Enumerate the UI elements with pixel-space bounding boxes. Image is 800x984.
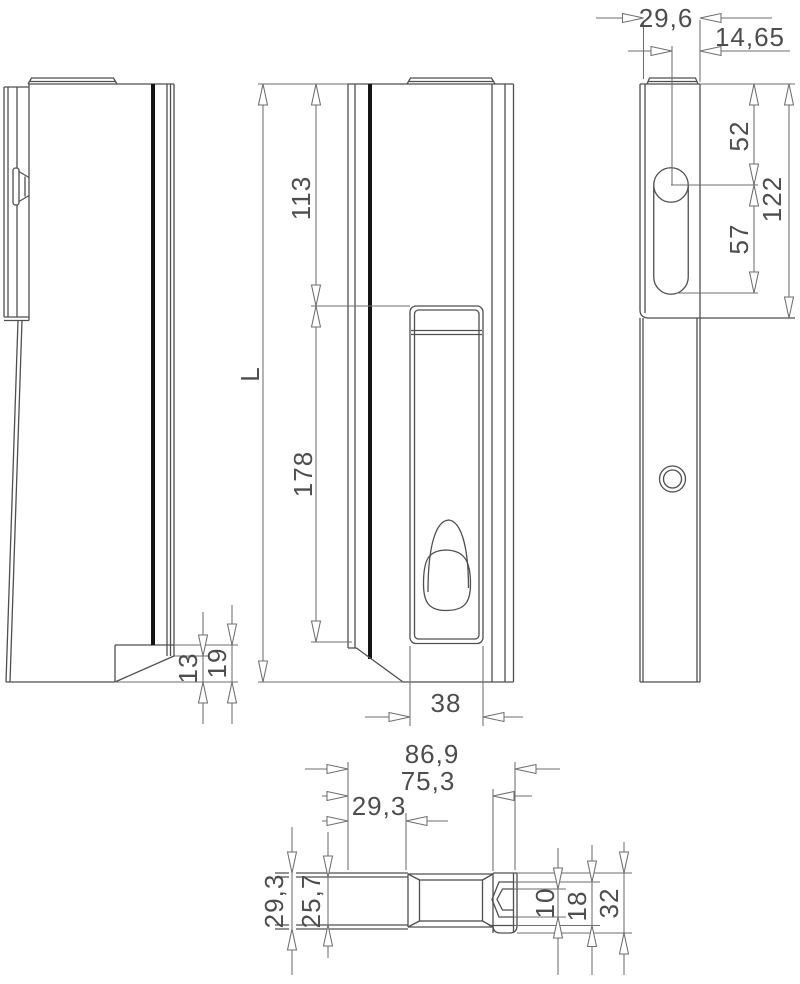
front-view: L 113 178 38 bbox=[235, 78, 523, 726]
dim-arrow bbox=[288, 852, 297, 873]
dim-arrow bbox=[327, 792, 348, 801]
drawing-canvas: 13 19 bbox=[0, 0, 800, 984]
plan-view: 86,9 75,3 29,3 29,3 25,7 bbox=[259, 739, 632, 975]
dim-arrow bbox=[785, 297, 794, 318]
dim-label-52: 52 bbox=[724, 121, 754, 152]
dim-arrow bbox=[199, 682, 208, 703]
part-outline bbox=[348, 78, 514, 682]
part-outline bbox=[4, 78, 174, 682]
dim-arrow bbox=[228, 682, 237, 703]
dim-label-122: 122 bbox=[757, 176, 787, 222]
knob bbox=[13, 168, 19, 205]
dim-label-86-9: 86,9 bbox=[405, 739, 460, 769]
dim-label-29-6: 29,6 bbox=[639, 3, 694, 33]
dim-label-13: 13 bbox=[173, 653, 203, 684]
dim-arrow bbox=[312, 306, 321, 327]
left-side-view: 13 19 bbox=[4, 78, 238, 724]
dim-arrow bbox=[259, 84, 268, 105]
technical-drawing: 13 19 bbox=[0, 0, 800, 984]
dim-arrow bbox=[515, 765, 536, 774]
dim-arrow bbox=[406, 817, 427, 826]
dim-arrow bbox=[588, 861, 597, 882]
dim-label-57: 57 bbox=[724, 224, 754, 255]
dimensions: 29,6 14,65 52 57 122 bbox=[596, 3, 795, 318]
part-outline bbox=[640, 78, 795, 682]
dim-arrow bbox=[288, 929, 297, 950]
right-side-view: 29,6 14,65 52 57 122 bbox=[596, 3, 795, 682]
dimensions: 86,9 75,3 29,3 29,3 25,7 bbox=[259, 739, 632, 975]
dim-arrow bbox=[785, 84, 794, 105]
dim-arrow bbox=[493, 792, 514, 801]
dim-label-10: 10 bbox=[530, 888, 560, 919]
dim-label-113: 113 bbox=[286, 176, 316, 220]
dim-label-32: 32 bbox=[594, 888, 624, 919]
dim-arrow bbox=[228, 624, 237, 645]
dim-arrow bbox=[312, 621, 321, 642]
dim-arrow bbox=[327, 765, 348, 774]
dim-arrow bbox=[483, 713, 504, 722]
dim-arrow bbox=[651, 47, 672, 56]
dim-label-38: 38 bbox=[431, 688, 462, 718]
dim-arrow bbox=[750, 272, 759, 293]
dim-label-14-65: 14,65 bbox=[715, 22, 785, 52]
hook bbox=[492, 882, 514, 917]
dim-arrow bbox=[620, 933, 629, 954]
dim-label-75-3: 75,3 bbox=[401, 766, 456, 796]
dim-label-L: L bbox=[235, 366, 265, 381]
dim-arrow bbox=[312, 285, 321, 306]
dim-label-178: 178 bbox=[288, 451, 318, 497]
dim-arrow bbox=[259, 661, 268, 682]
dim-arrow bbox=[312, 84, 321, 105]
dim-arrow bbox=[554, 868, 563, 889]
dimensions: 13 19 bbox=[115, 605, 238, 724]
handle bbox=[410, 306, 483, 644]
dim-arrow bbox=[620, 852, 629, 873]
dim-arrow bbox=[750, 84, 759, 105]
dim-arrow bbox=[389, 713, 410, 722]
dim-label-19: 19 bbox=[202, 648, 232, 679]
dim-label-18: 18 bbox=[562, 891, 592, 922]
dim-label-29-3v: 29,3 bbox=[259, 874, 289, 929]
dim-label-25-7: 25,7 bbox=[296, 874, 326, 929]
dim-arrow bbox=[588, 926, 597, 947]
dim-arrow bbox=[327, 817, 348, 826]
dim-label-29-3h: 29,3 bbox=[352, 791, 407, 821]
